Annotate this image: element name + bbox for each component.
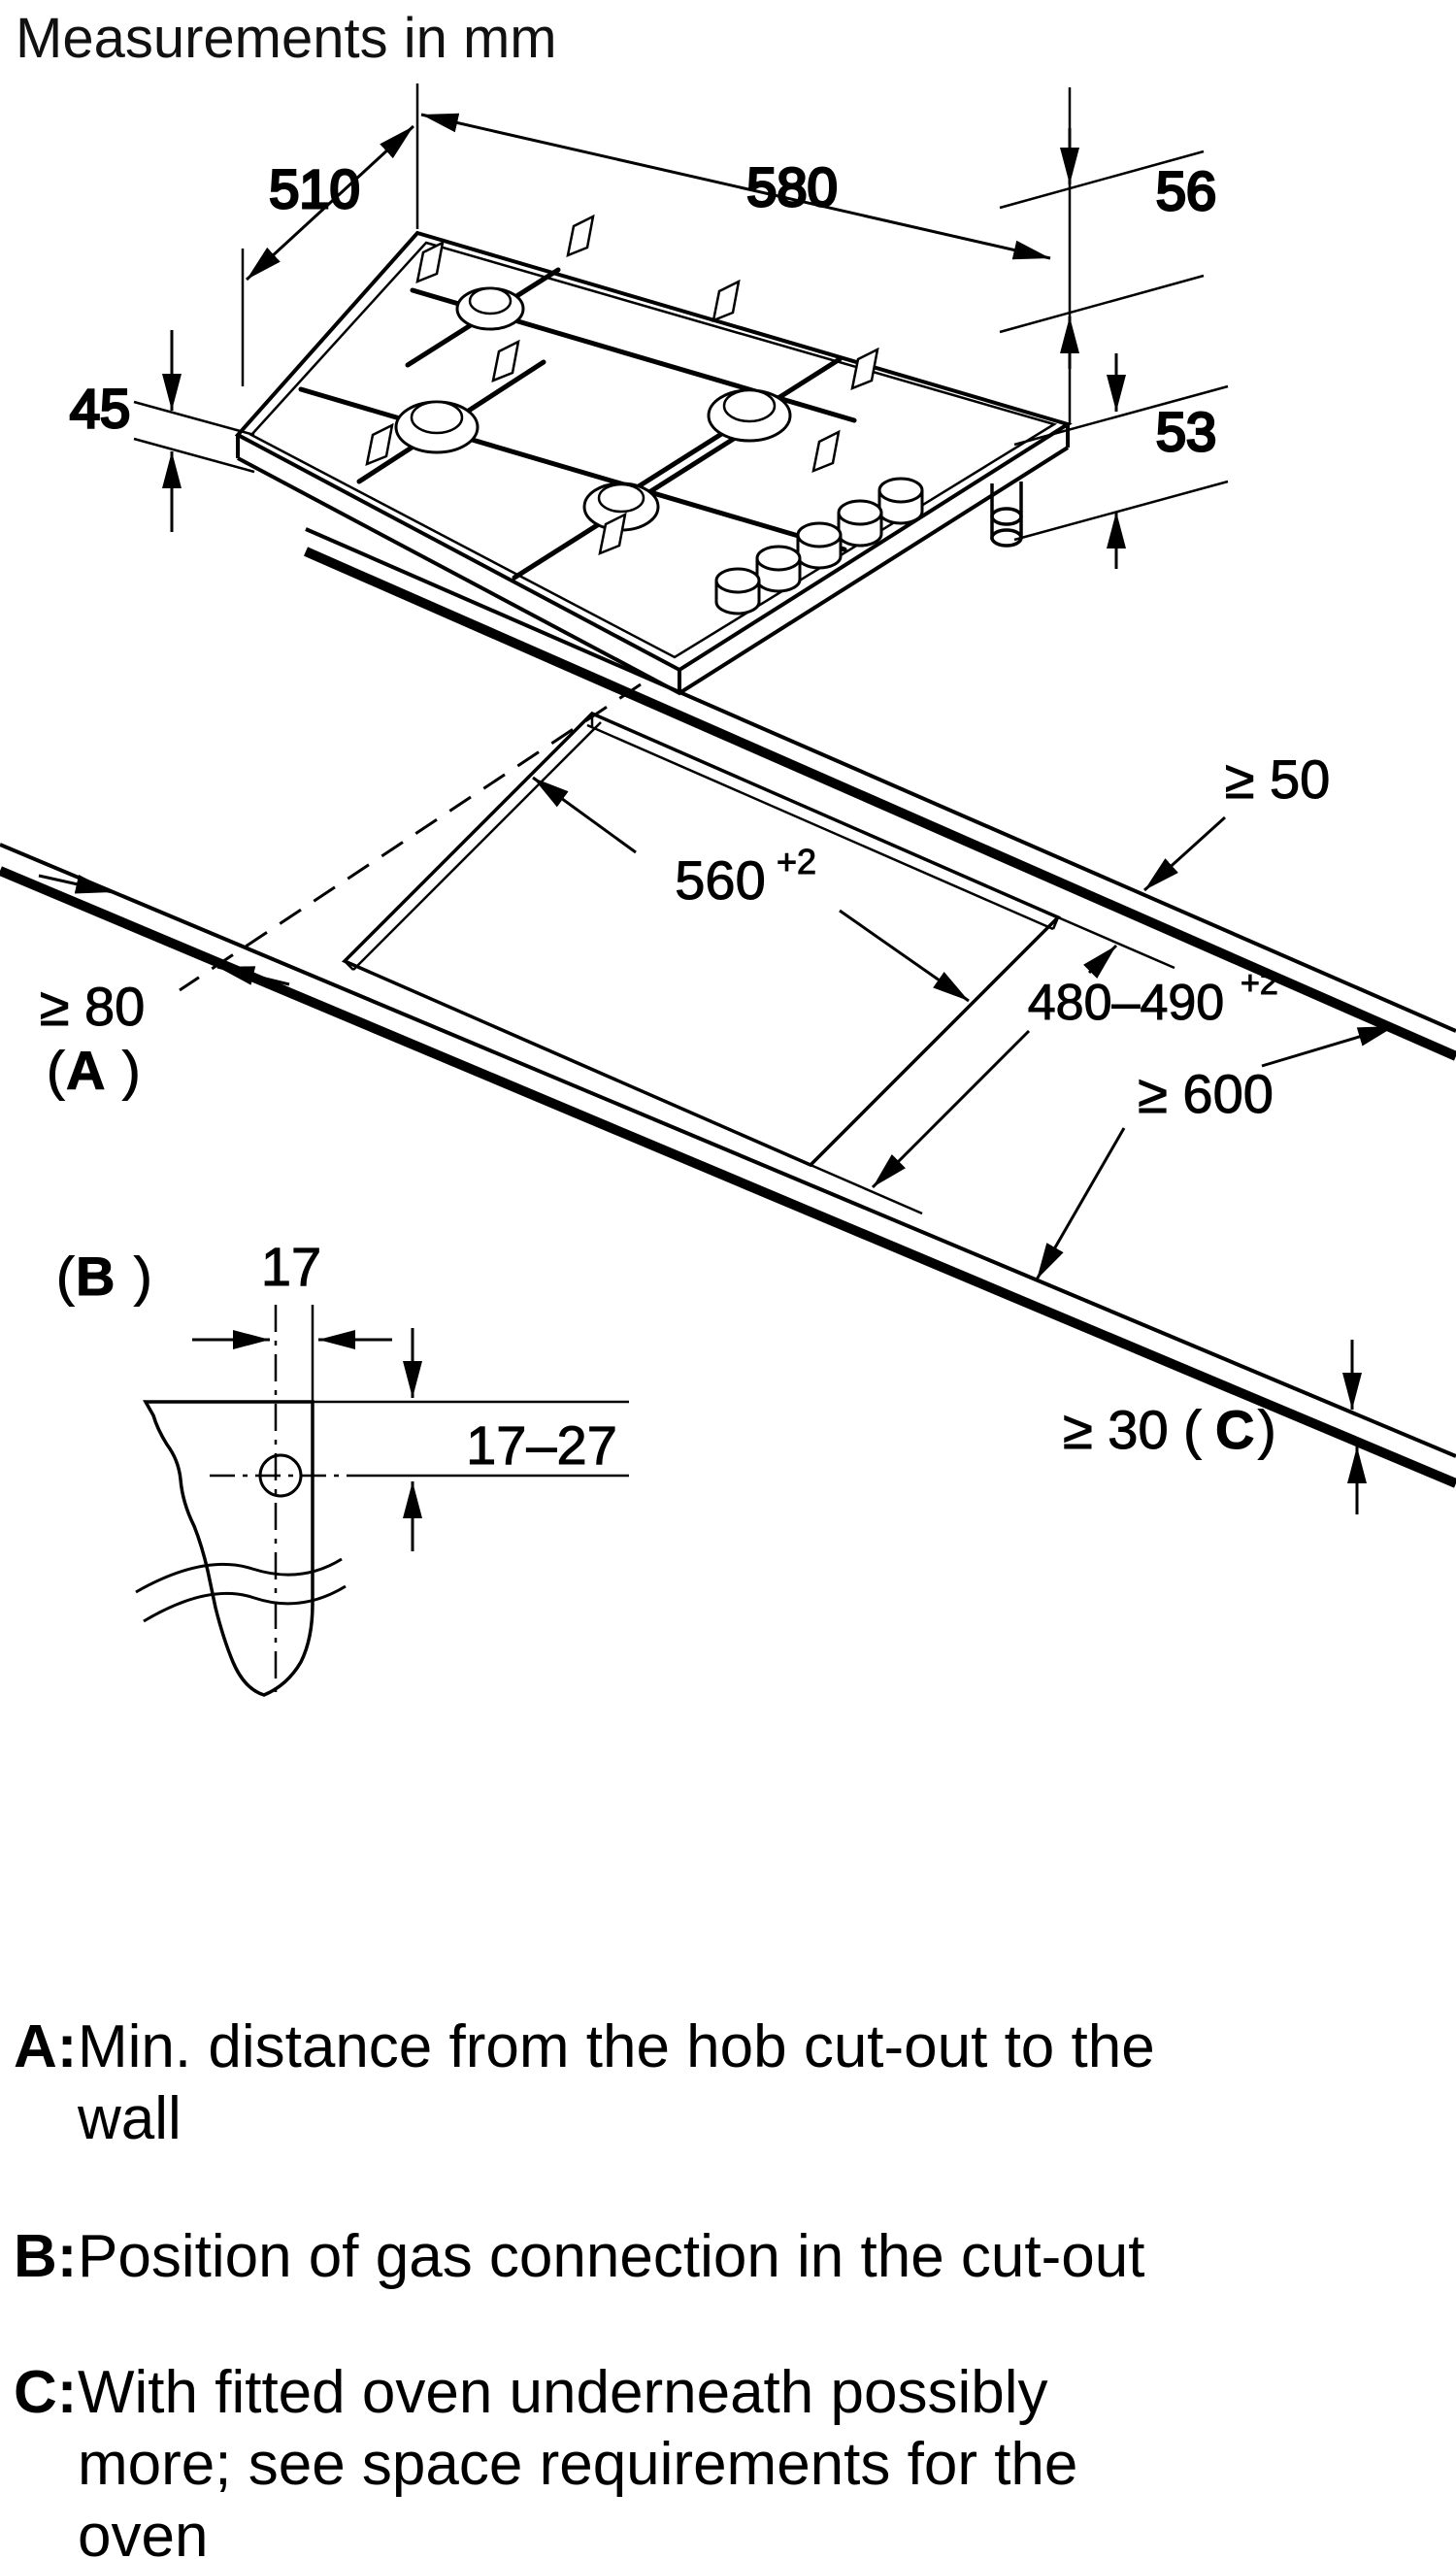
installation-diagram-page: Measurements in mm [0, 0, 1456, 2559]
legend-c-line1: With fitted oven underneath possibly [78, 2357, 1431, 2429]
dimension-480-490 [811, 917, 1175, 1213]
dimension-580 [421, 115, 1050, 258]
dimension-510 [243, 83, 417, 386]
dimension-45 [134, 330, 254, 532]
legend-a-line2: wall [78, 2083, 1431, 2155]
svg-text:≥ 30 (: ≥ 30 ( [1063, 1399, 1202, 1460]
dim-510-label: 510 [269, 158, 359, 219]
dim-560-tolerance: +2 [777, 842, 816, 881]
dim-480-490-label: 480–490 [1028, 975, 1224, 1031]
cutout-outline [345, 714, 1058, 1165]
burner-back-cap [470, 288, 511, 314]
svg-text:): ) [134, 1246, 152, 1307]
dim-worktop-depth-label: ≥ 600 [1138, 1063, 1274, 1124]
dim-53-label: 53 [1156, 401, 1216, 462]
control-knobs [716, 479, 922, 614]
svg-text:): ) [122, 1040, 141, 1101]
hob-body-side [238, 424, 1068, 693]
svg-text:(: ( [56, 1246, 75, 1307]
legend-b-line1: Position of gas connection in the cut-ou… [78, 2221, 1431, 2293]
svg-text:B: B [76, 1246, 115, 1307]
key-b-label: ( B ) [56, 1246, 152, 1307]
legend-text-c: With fitted oven underneath possibly mor… [78, 2357, 1431, 2559]
legend-item-b: B: Position of gas connection in the cut… [14, 2221, 1431, 2293]
front-wall-edge [0, 845, 1456, 1483]
worktop-edge-piece [146, 1402, 313, 1695]
dim-580-label: 580 [746, 156, 837, 217]
hob-drawing [238, 216, 1068, 693]
legend-key-b: B: [14, 2221, 78, 2293]
dim-side-clearance-label: ≥ 80 [40, 976, 146, 1037]
key-a-label: ( A ) [47, 1040, 141, 1101]
dimension-thickness [1352, 1340, 1357, 1514]
burner-left-cap [412, 402, 462, 433]
legend-key-a: A: [14, 2011, 78, 2155]
dimension-rear-clearance-arrow [1144, 817, 1225, 890]
legend-a-line1: Min. distance from the hob cut-out to th… [78, 2011, 1431, 2083]
dim-rear-clearance-label: ≥ 50 [1225, 748, 1331, 810]
worktop-cutout-drawing: 560 +2 480–490 +2 ≥ 50 ≥ 80 ( A ) ≥ 600 … [0, 529, 1456, 1514]
svg-text:(: ( [47, 1040, 65, 1101]
dim-45-label: 45 [70, 378, 130, 439]
legend-text-a: Min. distance from the hob cut-out to th… [78, 2011, 1431, 2155]
burner-right-cap [724, 390, 775, 421]
svg-text:A: A [66, 1040, 105, 1101]
svg-text:C: C [1215, 1399, 1254, 1460]
legend-key-c: C: [14, 2357, 78, 2559]
dim-17-label: 17 [261, 1236, 321, 1297]
dim-thickness-label: ≥ 30 ( C ) [1063, 1399, 1276, 1460]
gas-connection-detail: ( B ) 17 17–27 [56, 1236, 629, 1695]
dimension-17 [192, 1305, 392, 1406]
legend-item-a: A: Min. distance from the hob cut-out to… [14, 2011, 1431, 2155]
legend-c-line2: more; see space requirements for the [78, 2429, 1431, 2501]
legend-text-b: Position of gas connection in the cut-ou… [78, 2221, 1431, 2293]
dimension-56 [1000, 87, 1204, 424]
svg-text:): ) [1258, 1399, 1276, 1460]
legend-c-line3: oven [78, 2501, 1431, 2559]
projection-dashed-line [180, 684, 641, 990]
hob-top-outer-rim [238, 233, 1068, 670]
dimension-side-clearance [39, 876, 289, 984]
dim-17-27-label: 17–27 [466, 1414, 617, 1476]
burner-front-cap [599, 484, 644, 512]
dim-560-label: 560 [675, 849, 765, 911]
installation-diagram-svg: 510 580 56 53 45 [0, 0, 1456, 1747]
dim-480-490-tolerance: +2 [1241, 965, 1278, 1002]
legend-item-c: C: With fitted oven underneath possibly … [14, 2357, 1431, 2559]
dim-56-label: 56 [1156, 160, 1216, 221]
